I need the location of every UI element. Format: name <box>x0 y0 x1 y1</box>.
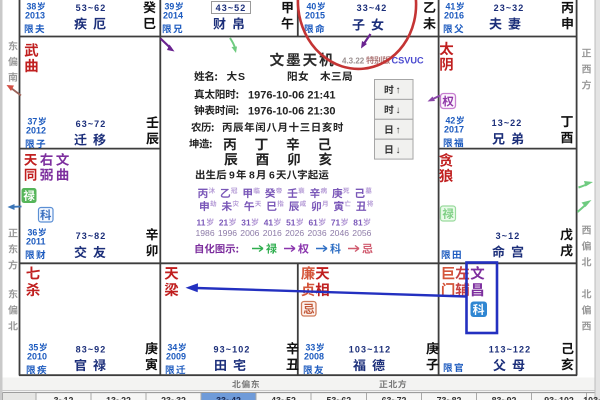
svg-text:3~12: 3~12 <box>54 395 74 400</box>
svg-text:6: 6 <box>269 171 275 182</box>
svg-text:1996: 1996 <box>218 228 237 238</box>
svg-text:103~112: 103~112 <box>349 345 392 355</box>
svg-text:2006: 2006 <box>240 228 259 238</box>
svg-text:43~52: 43~52 <box>216 3 247 13</box>
svg-text:2010: 2010 <box>27 352 47 362</box>
svg-text:93~102: 93~102 <box>214 345 251 355</box>
svg-text:2009: 2009 <box>166 352 186 362</box>
svg-text:53~62: 53~62 <box>326 395 351 400</box>
svg-text:2026: 2026 <box>285 228 304 238</box>
svg-text:73~82: 73~82 <box>437 395 462 400</box>
svg-text:81: 81 <box>353 218 363 228</box>
svg-text:113~122: 113~122 <box>489 345 532 355</box>
svg-text:93~102: 93~102 <box>544 395 574 400</box>
svg-text:103~: 103~ <box>583 395 600 400</box>
svg-text:11: 11 <box>197 218 206 228</box>
svg-text:73~82: 73~82 <box>76 231 107 241</box>
svg-text:2008: 2008 <box>304 352 324 362</box>
svg-text:21: 21 <box>219 218 229 228</box>
svg-text:2016: 2016 <box>263 228 282 238</box>
svg-text:4.3.22: 4.3.22 <box>342 57 365 66</box>
svg-text:1976-10-06 21:30: 1976-10-06 21:30 <box>248 105 335 117</box>
svg-text:2017: 2017 <box>444 125 464 135</box>
svg-text:23~32: 23~32 <box>494 3 525 13</box>
svg-text:33~42: 33~42 <box>216 395 241 400</box>
svg-text:1976-10-06 21:41: 1976-10-06 21:41 <box>248 89 335 101</box>
svg-text:51: 51 <box>286 218 296 228</box>
svg-text:13~22: 13~22 <box>106 395 131 400</box>
svg-text:↓: ↓ <box>396 105 401 116</box>
svg-text:83~92: 83~92 <box>76 345 107 355</box>
svg-text:23~32: 23~32 <box>161 395 186 400</box>
svg-text:2016: 2016 <box>444 11 464 21</box>
svg-text:61: 61 <box>309 218 319 228</box>
svg-text:63~72: 63~72 <box>382 395 407 400</box>
svg-text:53~62: 53~62 <box>76 3 107 13</box>
svg-text:31: 31 <box>241 218 251 228</box>
svg-text:2056: 2056 <box>352 228 371 238</box>
svg-text:2015: 2015 <box>305 11 325 21</box>
svg-text:CSVUC: CSVUC <box>392 56 425 66</box>
svg-text:43~52: 43~52 <box>271 395 296 400</box>
svg-text:2011: 2011 <box>26 237 46 247</box>
svg-text:71: 71 <box>331 218 341 228</box>
svg-text:2012: 2012 <box>26 126 46 136</box>
svg-text:83~92: 83~92 <box>492 395 517 400</box>
svg-text:9: 9 <box>229 171 235 182</box>
svg-text:2013: 2013 <box>25 11 45 21</box>
svg-text:41: 41 <box>264 218 274 228</box>
svg-text:63~72: 63~72 <box>76 119 107 129</box>
svg-text:S: S <box>238 71 245 83</box>
svg-text:↑: ↑ <box>396 85 401 96</box>
svg-text:3~12: 3~12 <box>496 231 521 241</box>
svg-text:2046: 2046 <box>330 228 349 238</box>
svg-text:2014: 2014 <box>163 11 183 21</box>
svg-text:13~22: 13~22 <box>492 118 523 128</box>
svg-text:2036: 2036 <box>308 228 327 238</box>
svg-text:8: 8 <box>249 171 255 182</box>
svg-text:33~42: 33~42 <box>357 3 388 13</box>
svg-text:↑: ↑ <box>396 125 401 136</box>
svg-text:1986: 1986 <box>196 228 215 238</box>
svg-text:↓: ↓ <box>396 145 401 156</box>
